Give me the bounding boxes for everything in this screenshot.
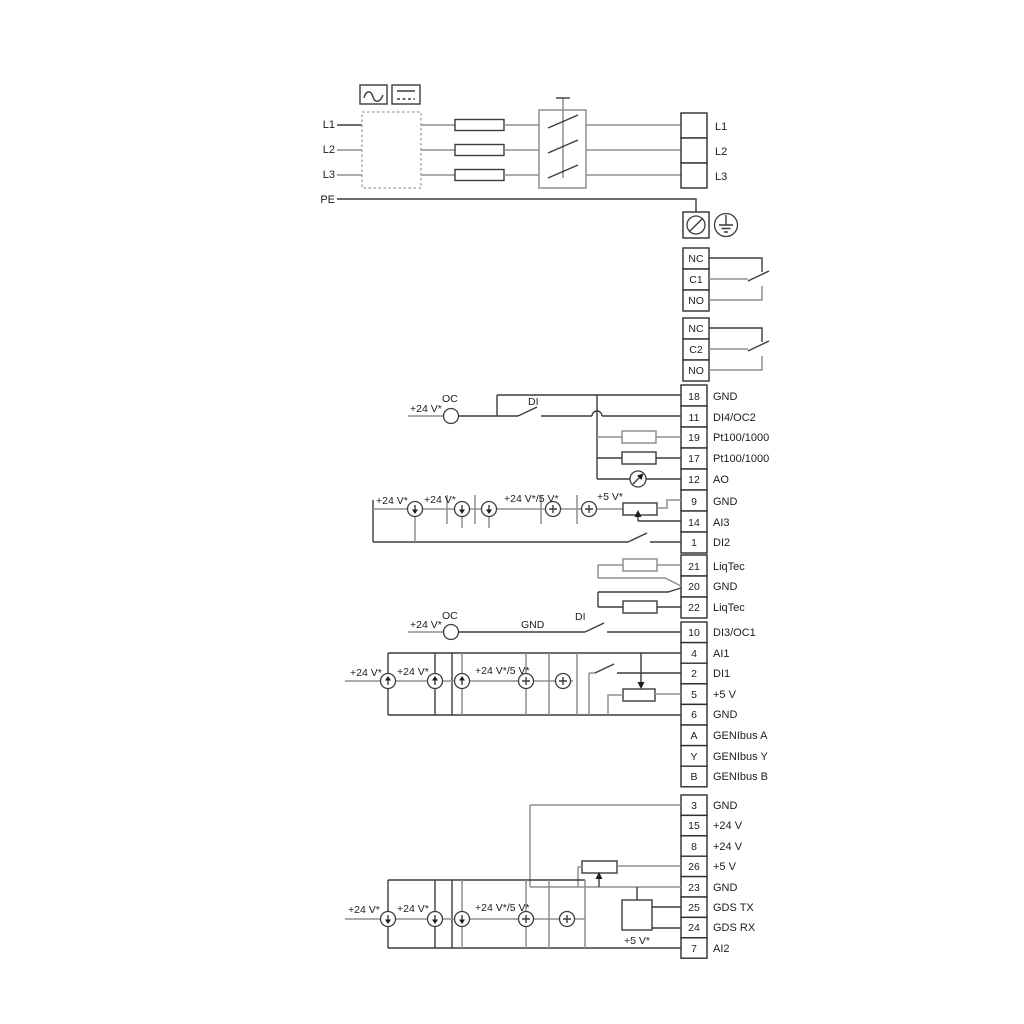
current-source-icon <box>428 674 443 689</box>
fuse-3 <box>455 170 504 181</box>
relay1-c1: C1 <box>689 274 703 286</box>
label-gnd-row10: GND <box>521 619 545 631</box>
label-di-row10: DI <box>575 611 586 623</box>
wires-to-fuses <box>421 125 455 175</box>
io-block-b: 21 20 22 LiqTec GND LiqTec <box>598 555 745 618</box>
potentiometer-ai2 <box>582 861 617 873</box>
mains-terminal-l1 <box>681 113 707 138</box>
terminal-24-label: GDS RX <box>713 922 756 934</box>
mains-terminal-l3 <box>681 163 707 188</box>
io-wiring-di3: +24 V* OC GND DI <box>408 610 681 640</box>
analog-output-meter-icon <box>630 471 646 487</box>
relay2-no: NO <box>688 365 704 377</box>
wire-gnd-3 <box>530 805 681 887</box>
mains-label-l2: L2 <box>323 144 335 156</box>
voltage-source-icon <box>582 502 597 517</box>
relay2-nc: NC <box>688 323 704 335</box>
current-source-icon <box>408 502 423 517</box>
terminal-a-label: GENIbus A <box>713 730 768 742</box>
gds-sensor-box <box>622 900 652 930</box>
diagram-canvas: L1 L2 L3 PE L1 L2 L3 <box>0 0 1024 1024</box>
terminal-b-num: B <box>690 771 697 783</box>
relay1-no: NO <box>688 295 704 307</box>
label-ai2-24v-1: +24 V* <box>348 904 380 916</box>
terminal-1-num: 1 <box>691 537 697 549</box>
terminal-17-num: 17 <box>688 453 700 465</box>
terminal-7-label: AI2 <box>713 943 730 955</box>
terminal-6-label: GND <box>713 709 738 721</box>
mains-terminal-label-l2: L2 <box>715 146 727 158</box>
terminal-8-num: 8 <box>691 841 697 853</box>
label-24v-row10: +24 V* <box>410 619 442 631</box>
mains-label-pe: PE <box>320 194 335 206</box>
di4-switch-blade <box>518 407 537 416</box>
terminal-15-label: +24 V <box>713 820 743 832</box>
terminal-8-label: +24 V <box>713 841 743 853</box>
ai3-stubs <box>415 517 489 542</box>
terminal-b-label: GENIbus B <box>713 771 768 783</box>
terminal-9-label: GND <box>713 496 738 508</box>
potentiometer-ai1 <box>623 689 655 701</box>
terminal-9-num: 9 <box>691 496 697 508</box>
ai3-option-row: +24 V* +24 V* +24 V*/5 V* +5 V* <box>373 491 681 542</box>
wire-gnd-9 <box>657 500 681 508</box>
voltage-source-icon <box>546 502 561 517</box>
ac-symbol-box <box>360 85 387 104</box>
relay2-contact-blade <box>748 341 769 351</box>
di1-switch-blade <box>595 664 614 673</box>
current-source-icon <box>381 674 396 689</box>
current-source-icon <box>428 912 443 927</box>
wire-pe <box>337 199 696 212</box>
resistor-pt100-19 <box>622 431 656 443</box>
dc-symbol-box <box>392 85 420 104</box>
terminal-24-num: 24 <box>688 922 700 934</box>
relay2-no-wire <box>709 356 762 370</box>
terminal-11-num: 11 <box>689 412 700 424</box>
terminal-15-num: 15 <box>688 820 700 832</box>
terminal-19-label: Pt100/1000 <box>713 432 769 444</box>
label-ai1-24v-1: +24 V* <box>350 667 382 679</box>
voltage-source-icon <box>556 674 571 689</box>
relay2-c2: C2 <box>689 344 703 356</box>
terminal-5-label: +5 V <box>713 689 737 701</box>
terminal-18-num: 18 <box>688 391 700 403</box>
terminal-23-label: GND <box>713 882 738 894</box>
terminal-2-num: 2 <box>691 668 697 680</box>
di1-left-link <box>589 673 595 715</box>
terminal-25-num: 25 <box>688 902 700 914</box>
terminal-22-num: 22 <box>688 602 700 614</box>
resistor-pt100-17 <box>622 452 656 464</box>
open-collector-icon <box>444 409 459 424</box>
open-collector-icon <box>444 625 459 640</box>
mains-label-l3: L3 <box>323 169 335 181</box>
wiring-diagram: L1 L2 L3 PE L1 L2 L3 <box>0 0 1024 1024</box>
terminal-26-label: +5 V <box>713 861 737 873</box>
terminal-25-label: GDS TX <box>713 902 754 914</box>
terminal-a-num: A <box>690 730 697 742</box>
label-ai3-24v-1: +24 V* <box>376 495 408 507</box>
relay2-nc-wire <box>709 328 762 342</box>
pot-arrow-ai1 <box>638 682 645 689</box>
relay1-nc-wire <box>709 258 762 272</box>
io-block-a: 18 11 19 17 12 9 14 1 GND DI4/OC2 Pt100/… <box>681 385 769 553</box>
terminal-2-label: DI1 <box>713 668 730 680</box>
terminal-19-num: 19 <box>688 432 700 444</box>
terminal-10-num: 10 <box>688 627 700 639</box>
terminal-14-label: AI3 <box>713 517 730 529</box>
wires-to-mains-terminals <box>586 125 681 175</box>
terminal-20-label: GND <box>713 581 738 593</box>
voltage-source-icon <box>519 912 534 927</box>
label-ai2-24v5v: +24 V*/5 V* <box>475 902 530 914</box>
terminal-3-label: GND <box>713 800 738 812</box>
label-oc-row11: OC <box>442 393 458 405</box>
current-source-icon <box>455 674 470 689</box>
terminal-6-num: 6 <box>691 709 697 721</box>
liqtec-resistor-21 <box>623 559 657 571</box>
mains-label-l1: L1 <box>323 119 335 131</box>
label-gds-5v: +5 V* <box>624 935 650 947</box>
terminal-21-num: 21 <box>688 561 700 573</box>
label-oc-row10: OC <box>442 610 458 622</box>
terminal-7-num: 7 <box>691 943 697 955</box>
terminal-26-num: 26 <box>688 861 700 873</box>
relay-1: NC C1 NO <box>683 248 769 311</box>
relay1-contact-blade <box>748 271 769 281</box>
fuse-1 <box>455 120 504 131</box>
ai1-option-row: +24 V* +24 V* +24 V*/5 V* <box>345 653 681 715</box>
label-ai2-24v-2: +24 V* <box>397 903 429 915</box>
terminal-10-label: DI3/OC1 <box>713 627 756 639</box>
converter-dashed-box <box>362 112 421 188</box>
terminal-4-num: 4 <box>691 648 697 660</box>
relay-2: NC C2 NO <box>683 318 769 381</box>
label-di-row11: DI <box>528 396 539 408</box>
io-wiring-a: +24 V* OC DI <box>408 393 681 487</box>
label-ai3-24v-2: +24 V* <box>424 494 456 506</box>
current-source-icon <box>455 502 470 517</box>
io-block-c: 10 4 2 5 6 A Y B DI3/OC1 AI1 DI1 +5 V GN… <box>681 622 768 787</box>
terminal-y-label: GENIbus Y <box>713 751 768 763</box>
terminal-11-label: DI4/OC2 <box>713 412 756 424</box>
fuse-2 <box>455 145 504 156</box>
ai2-option-row: +5 V* +24 V* +24 V* +24 V*/5 V* <box>345 805 681 948</box>
potentiometer-ai3 <box>623 503 657 515</box>
terminal-18-label: GND <box>713 391 738 403</box>
terminal-4-label: AI1 <box>713 648 730 660</box>
terminal-12-label: AO <box>713 474 729 486</box>
terminal-21-label: LiqTec <box>713 561 745 573</box>
terminal-17-label: Pt100/1000 <box>713 453 769 465</box>
mains-terminal-label-l1: L1 <box>715 121 727 133</box>
relay1-nc: NC <box>688 253 704 265</box>
terminal-y-num: Y <box>690 751 697 763</box>
current-source-icon <box>482 502 497 517</box>
label-ai1-24v-2: +24 V* <box>397 666 429 678</box>
terminal-14-num: 14 <box>688 517 700 529</box>
wires-to-switch <box>504 125 539 175</box>
terminal-22-label: LiqTec <box>713 602 745 614</box>
mains-terminal-label-l3: L3 <box>715 171 727 183</box>
current-source-icon <box>455 912 470 927</box>
earth-ground-icon <box>715 214 738 237</box>
terminal-3-num: 3 <box>691 800 697 812</box>
liqtec-resistor-22 <box>623 601 657 613</box>
relay1-no-wire <box>709 286 762 300</box>
terminal-12-num: 12 <box>688 474 700 486</box>
terminal-5-num: 5 <box>691 689 697 701</box>
label-ai3-5v: +5 V* <box>597 491 623 503</box>
gds-tx-rx-wires <box>652 907 681 928</box>
di3-switch-blade <box>585 623 604 632</box>
mains-section: L1 L2 L3 PE L1 L2 L3 <box>320 85 737 238</box>
label-24v-row11: +24 V* <box>410 403 442 415</box>
pot-gnd-link-ai1 <box>608 695 623 715</box>
voltage-source-icon <box>560 912 575 927</box>
terminal-1-label: DI2 <box>713 537 730 549</box>
mains-terminal-l2 <box>681 138 707 163</box>
terminal-20-num: 20 <box>688 581 700 593</box>
io-block-d: 3 15 8 26 23 25 24 7 GND +24 V +24 V +5 … <box>681 795 756 958</box>
voltage-source-icon <box>519 674 534 689</box>
terminal-23-num: 23 <box>688 882 700 894</box>
di2-switch-blade <box>628 533 647 542</box>
current-source-icon <box>381 912 396 927</box>
